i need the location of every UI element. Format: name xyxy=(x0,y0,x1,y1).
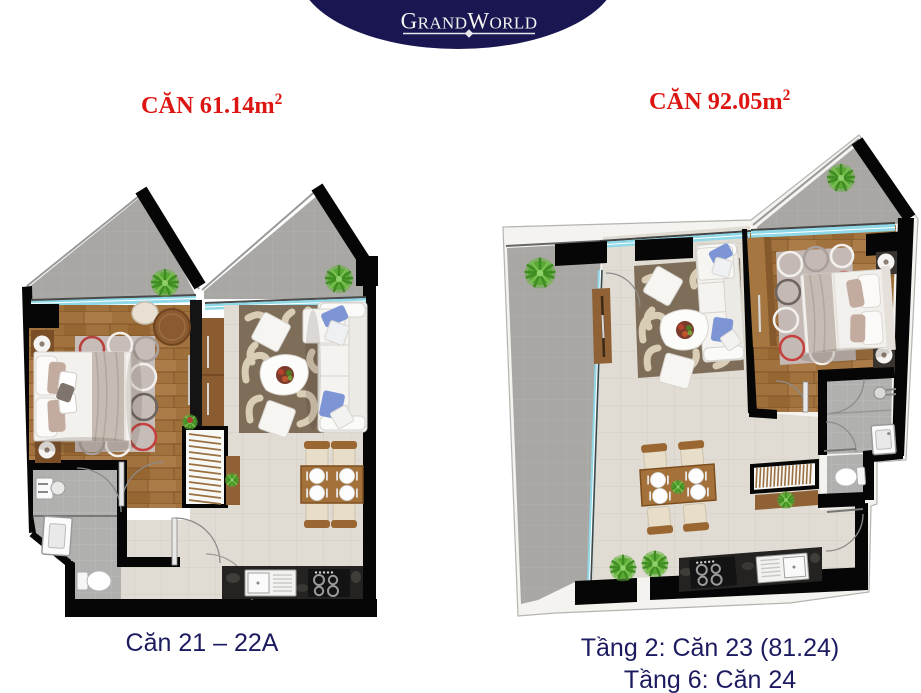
svg-text:CĂN 92.05m2: CĂN 92.05m2 xyxy=(649,87,791,115)
svg-text:Tầng 2: Căn 23 (81.24): Tầng 2: Căn 23 (81.24) xyxy=(581,634,840,662)
svg-text:CĂN 61.14m2: CĂN 61.14m2 xyxy=(141,91,283,119)
svg-text:Căn 21 – 22A: Căn 21 – 22A xyxy=(126,629,279,657)
svg-text:Tầng 6: Căn 24: Tầng 6: Căn 24 xyxy=(624,666,796,693)
